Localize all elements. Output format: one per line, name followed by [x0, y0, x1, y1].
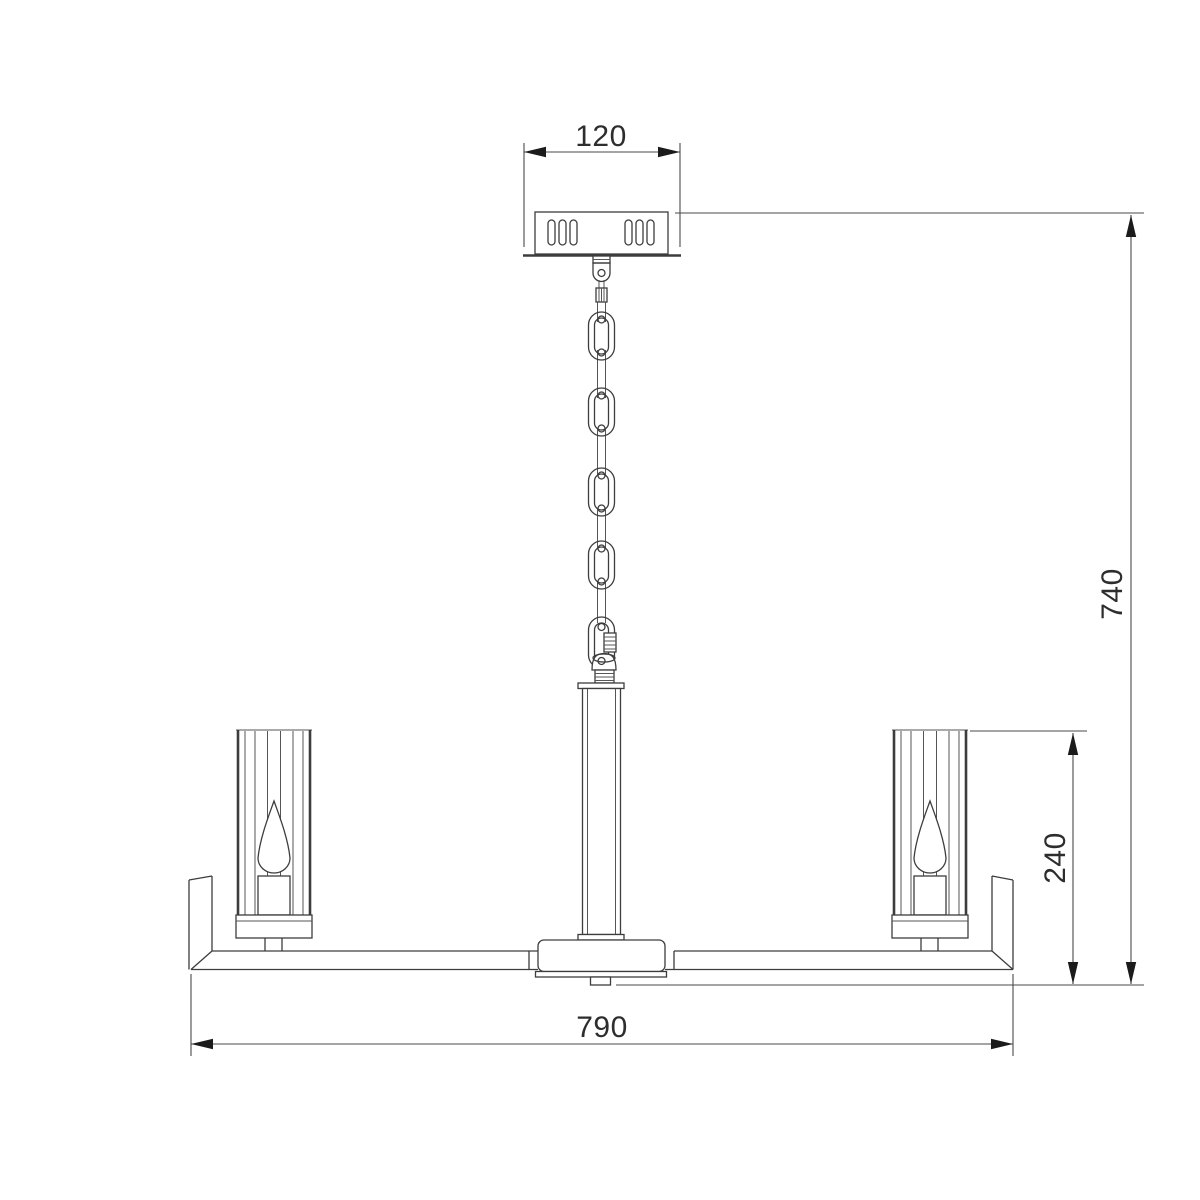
chain-link [589, 312, 615, 360]
dim-frame-width: 790 [191, 974, 1013, 1056]
chain-link [589, 468, 615, 516]
right-lamp-shade [892, 730, 968, 951]
hub-bottom-plate [536, 972, 667, 978]
chain-link [589, 388, 615, 436]
technical-drawing-page: 120 740 240 790 [0, 0, 1200, 1200]
chain-socket-adapter [592, 654, 616, 684]
frame-left-end [189, 876, 212, 970]
chandelier-dimension-drawing: 120 740 240 790 [0, 0, 1200, 1200]
arrow-up-icon [1068, 733, 1078, 755]
column-top-cap [578, 683, 624, 689]
hanging-chain [589, 312, 615, 623]
arrow-down-icon [1126, 962, 1136, 984]
canopy-vent-slots [548, 220, 654, 245]
center-column [578, 683, 624, 940]
dim-shade-height-label: 240 [1039, 832, 1072, 884]
arrow-down-icon [1068, 962, 1078, 984]
arrow-up-icon [1126, 215, 1136, 237]
ceiling-canopy [523, 212, 681, 256]
column-tube [583, 689, 621, 935]
arrow-right-icon [991, 1039, 1013, 1049]
arrow-right-icon [658, 147, 680, 157]
column-bottom-flange [578, 935, 624, 941]
center-hub [536, 940, 667, 985]
dim-overall-height-label: 740 [1096, 568, 1129, 620]
dim-canopy-width-label: 120 [575, 120, 627, 153]
dim-shade-height: 240 [970, 731, 1087, 984]
dim-frame-width-label: 790 [576, 1011, 628, 1044]
arrow-left-icon [191, 1039, 213, 1049]
left-lamp-shade [236, 730, 312, 951]
chain-link [589, 541, 615, 589]
hub-finial [591, 977, 611, 985]
frame-right-end [992, 876, 1013, 970]
arrow-left-icon [524, 147, 546, 157]
